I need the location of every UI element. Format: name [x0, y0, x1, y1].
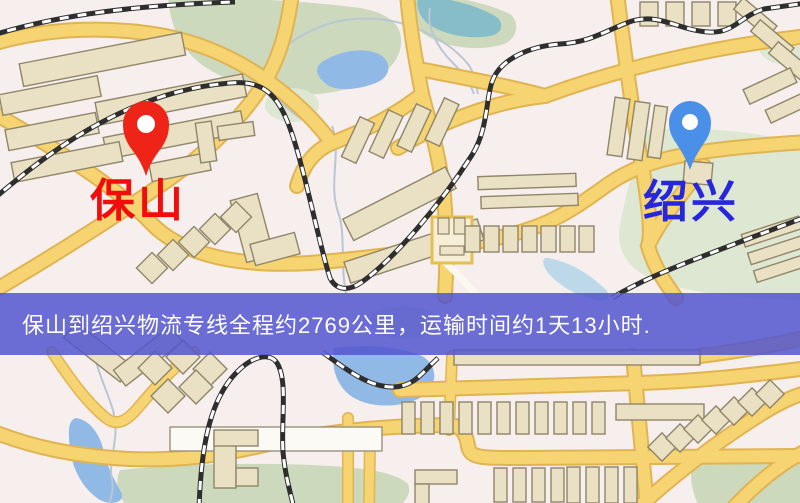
map-screenshot: 保山 绍兴 保山到绍兴物流专线全程约2769公里，运输时间约1天13小时. [0, 0, 800, 503]
destination-city-label: 绍兴 [643, 179, 739, 224]
destination-pin[interactable] [664, 96, 716, 170]
route-info-banner: 保山到绍兴物流专线全程约2769公里，运输时间约1天13小时. [0, 293, 800, 355]
map-canvas [0, 0, 800, 503]
origin-pin[interactable] [118, 96, 174, 176]
origin-pin-hole [137, 115, 155, 133]
route-info-text: 保山到绍兴物流专线全程约2769公里，运输时间约1天13小时. [22, 308, 651, 340]
origin-city-label: 保山 [90, 178, 186, 223]
destination-pin-hole [682, 114, 698, 130]
